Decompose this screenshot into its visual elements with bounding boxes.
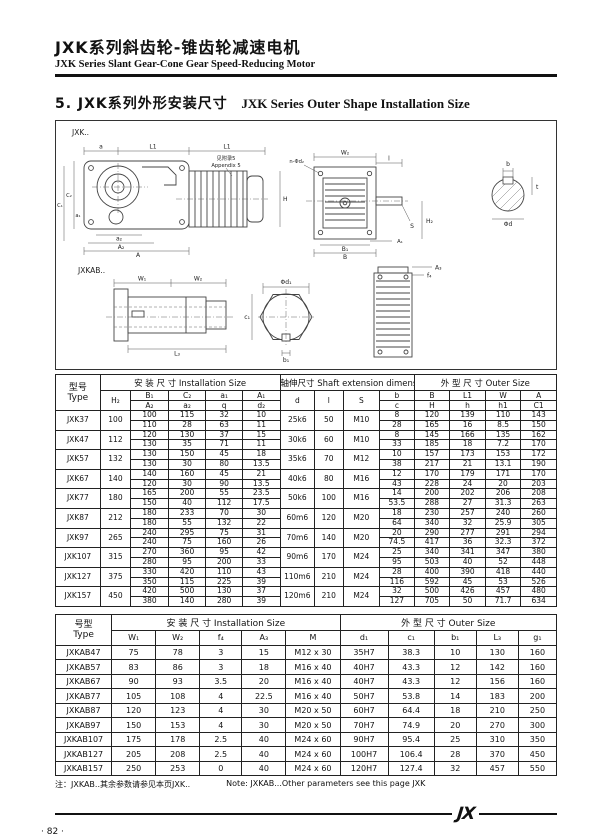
value-cell: 42650 [450,587,486,607]
value-cell: 230340 [414,508,450,528]
value-cell: 120 [315,508,343,528]
dim-label: B [343,254,347,261]
type-cell: JXK157 [56,587,101,607]
value-cell: 3.5 [200,674,242,689]
value-cell: 2595 [380,548,415,568]
value-cell: M12 [343,450,380,470]
value-cell: 75160 [206,528,243,548]
value-cell: 3 [200,660,242,675]
jxk-front-dims [304,153,422,257]
value-cell: 32 [434,761,476,776]
value-cell: 1038 [380,450,415,470]
table-row: JXK77180165150200405511223.517.550k6100M… [56,489,557,509]
brand-logo: JX [456,804,476,824]
value-cell: 550 [518,761,556,776]
dim-label: B₁ [342,246,349,253]
value-cell: 95.4 [388,732,434,747]
value-cell: 90 [112,674,156,689]
value-cell: 210 [315,567,343,587]
value-cell: 16030 [168,469,206,489]
jxk-dimension-table: 型号Type安 装 尺 寸 Installation Size轴伸尺寸 Shaf… [55,374,557,607]
value-cell: 240240 [131,528,169,548]
shaft-section-view [470,165,544,229]
page-number: · 82 · [41,827,557,837]
jxk-front-view [314,167,402,239]
value-cell: 13035 [168,430,206,450]
value-cell: M10 [343,430,380,450]
value-cell: 18 [434,703,476,718]
table-row: JXK872121801802335570132302260m6120M2018… [56,508,557,528]
value-cell: 212 [100,508,130,528]
value-cell: 32127 [380,587,415,607]
value-cell: M20 [343,528,380,548]
value-cell: 30 [242,718,286,733]
value-cell: 310 [476,732,518,747]
value-cell: 123 [156,703,200,718]
column-header: Wh1 [485,391,521,411]
value-cell: 4339 [242,567,280,587]
value-cell: 70m6 [280,528,315,548]
value-cell: 30k6 [280,430,315,450]
value-cell: 29575 [168,528,206,548]
column-header: A₃ [242,630,286,645]
group-header: 安 装 尺 寸 Installation Size [112,614,340,630]
dim-label: b [506,161,510,168]
value-cell: 833 [380,430,415,450]
value-cell: 178 [156,732,200,747]
value-cell: 208263 [521,489,557,509]
column-header: M [286,630,340,645]
table-row: JXKAB77105108422.5M16 x 4050H753.8141832… [56,689,557,704]
value-cell: 28116 [380,567,415,587]
value-cell: 100H7 [340,747,388,762]
value-cell: 17924 [450,469,486,489]
value-cell: 145185 [414,430,450,450]
value-cell: 260305 [521,508,557,528]
dim-label: S [410,223,414,230]
group-header: 外 型 尺 寸 Outer Size [340,614,556,630]
table-row: JXK1073152702803609595200423390m6170M242… [56,548,557,568]
value-cell: 132 [100,450,130,470]
value-cell: 170203 [521,469,557,489]
value-cell: 165150 [131,489,169,509]
value-cell: 370 [476,747,518,762]
value-cell: 34752 [485,548,521,568]
value-cell: 440526 [521,567,557,587]
value-cell: 60m6 [280,508,315,528]
value-cell: 13916 [450,411,486,431]
value-cell: M16 [343,469,380,489]
type-cell: JXKAB57 [56,660,112,675]
value-cell: 375 [100,567,130,587]
column-header: W₁ [112,630,156,645]
section-title: 5. JXK系列外形安装尺寸 JXK Series Outer Shape In… [55,93,557,113]
column-header: l [315,391,343,411]
value-cell: 205 [112,747,156,762]
dim-label: H₂ [426,218,434,225]
value-cell: 500705 [414,587,450,607]
value-cell: 380448 [521,548,557,568]
dim-label: L₃ [174,351,180,358]
value-cell: 183 [476,689,518,704]
technical-drawing-box: JXK.. [55,120,557,370]
value-cell: 60 [315,430,343,450]
value-cell: 290417 [414,528,450,548]
value-cell: 74.9 [388,718,434,733]
jxkab-vertical-view [374,267,412,357]
value-cell: 18 [242,660,286,675]
column-header: d₁ [340,630,388,645]
appendix-note-en: Appendix 5 [211,163,240,169]
value-cell: M20 x 50 [286,703,340,718]
group-header: 外 型 尺 寸 Outer Size [414,375,556,391]
jxk-figure-label: JXK.. [71,128,89,137]
column-header: S [343,391,380,411]
value-cell: 4590 [206,469,243,489]
type-cell: JXK97 [56,528,101,548]
value-cell: 170228 [414,469,450,489]
table-row: JXKAB477578315M12 x 3035H738.310130160 [56,645,557,660]
value-cell: 110m6 [280,567,315,587]
value-cell: 253 [156,761,200,776]
value-cell: 3263 [206,411,243,431]
type-cell: JXKAB47 [56,645,112,660]
technical-drawing: JXK.. [56,121,556,369]
value-cell: 3 [200,645,242,660]
value-cell: 40k6 [280,469,315,489]
value-cell: 3739 [242,587,280,607]
column-header: c₁ [388,630,434,645]
value-cell: 300 [518,718,556,733]
value-cell: 15313.1 [485,450,521,470]
footnote-en: Note: JXKAB...Other parameters see this … [226,779,425,790]
value-cell: 500140 [168,587,206,607]
value-cell: 95200 [206,548,243,568]
value-cell: 15030 [168,450,206,470]
value-cell: 172190 [521,450,557,470]
value-cell: 108 [156,689,200,704]
value-cell: M24 [343,567,380,587]
value-cell: M16 [343,489,380,509]
value-cell: 180 [100,489,130,509]
value-cell: 78 [156,645,200,660]
catalog-page: JXK系列斜齿轮-锥齿轮减速电机 JXK Series Slant Gear-C… [0,0,610,837]
type-cell: JXK47 [56,430,101,450]
dim-label: A₃ [435,265,442,272]
value-cell: 43.3 [388,660,434,675]
value-cell: 90m6 [280,548,315,568]
value-cell: 157217 [414,450,450,470]
value-cell: 23355 [168,508,206,528]
bore-centerlines [258,289,314,345]
series-title-cn: JXK系列斜齿轮-锥齿轮减速电机 [55,34,557,58]
value-cell: 93 [156,674,200,689]
value-cell: 828 [380,411,415,431]
value-cell: 160 [518,674,556,689]
value-cell: 4 [200,703,242,718]
value-cell: M16 x 40 [286,689,340,704]
value-cell: 120H7 [340,761,388,776]
value-cell: 29132.3 [485,528,521,548]
value-cell: M24 [343,548,380,568]
value-cell: 210 [315,587,343,607]
table-row: JXK47112120130130353771151130k660M108331… [56,430,557,450]
value-cell: 105 [112,689,156,704]
value-cell: 450 [100,587,130,607]
dim-label: Φd₁ [281,279,293,286]
dim-label: W₂ [194,276,203,283]
type-cell: JXK67 [56,469,101,489]
value-cell: 11528 [168,411,206,431]
value-cell: 140 [100,469,130,489]
type-cell: JXKAB97 [56,718,112,733]
value-cell: 3022 [242,508,280,528]
value-cell: 350 [518,732,556,747]
value-cell: 20227 [450,489,486,509]
dim-label: A₂ [118,244,125,251]
jxk-side-view [84,161,263,229]
dim-label: A [136,252,141,259]
value-cell: 265 [100,528,130,548]
value-cell: 90H7 [340,732,388,747]
jxkab-bore-dims [252,283,309,356]
value-cell: 130280 [206,587,243,607]
value-cell: 50 [315,411,343,431]
footnote-cn: 注：JXKAB..其余参数请参见本页JXK.. [55,779,190,790]
value-cell: 100 [100,411,130,431]
value-cell: 35H7 [340,645,388,660]
value-cell: 10 [434,645,476,660]
value-cell: 36095 [168,548,206,568]
value-cell: 250 [112,761,156,776]
value-cell: 170 [315,548,343,568]
value-cell: 17120 [485,469,521,489]
column-header: B₁A₂ [131,391,169,411]
jxkab-figure-label: JXKAB.. [77,266,105,275]
series-title-en: JXK Series Slant Gear-Cone Gear Speed-Re… [55,59,557,70]
dim-label: f₄ [427,273,432,280]
column-header: L₃ [476,630,518,645]
footer-rule: JX [55,804,557,824]
column-header: BH [414,391,450,411]
value-cell: 127.4 [388,761,434,776]
table-row: JXKAB1071751782.540M24 x 6090H795.425310… [56,732,557,747]
dim-label: l [388,156,390,163]
dim-label: b₁ [283,357,290,364]
value-cell: 130130 [131,450,169,470]
table-row: JXKAB97150153430M20 x 5070H774.920270300 [56,718,557,733]
value-cell: 110225 [206,567,243,587]
dim-label: a₁ [75,213,80,219]
value-cell: 250 [518,703,556,718]
column-header: A₁d₂ [242,391,280,411]
value-cell: 60H7 [340,703,388,718]
dim-label: n-Φd₂ [289,159,304,165]
jxkab-dimension-table: 号型Type安 装 尺 寸 Installation Size外 型 尺 寸 O… [55,614,557,777]
value-cell: 50k6 [280,489,315,509]
value-cell: 41853 [485,567,521,587]
value-cell: 420115 [168,567,206,587]
type-cell: JXK127 [56,567,101,587]
column-header: a₁q [206,391,243,411]
type-cell: JXKAB87 [56,703,112,718]
value-cell: 330350 [131,567,169,587]
value-cell: 16618 [450,430,486,450]
value-cell: 50H7 [340,689,388,704]
value-cell: 4580 [206,450,243,470]
value-cell: M20 x 50 [286,718,340,733]
value-cell: 0 [200,761,242,776]
value-cell: 20 [434,718,476,733]
type-cell: JXK87 [56,508,101,528]
value-cell: 28 [434,747,476,762]
value-cell: 75 [112,645,156,660]
value-cell: 1511 [242,430,280,450]
value-cell: 162170 [521,430,557,450]
value-cell: 120m6 [280,587,315,607]
value-cell: 70132 [206,508,243,528]
column-header: d [280,391,315,411]
value-cell: 20 [242,674,286,689]
dim-label: a [99,144,103,151]
table-row: JXK37100100110115283263101125k650M108281… [56,411,557,431]
table-row: JXK671401401201603045902113.540k680M1612… [56,469,557,489]
value-cell: 43.3 [388,674,434,689]
value-cell: 17321 [450,450,486,470]
value-cell: 3126 [242,528,280,548]
section-title-en: JXK Series Outer Shape Installation Size [241,96,469,111]
value-cell: 208 [156,747,200,762]
dim-label: H [283,196,288,203]
page-header: JXK系列斜齿轮-锥齿轮减速电机 JXK Series Slant Gear-C… [55,34,557,77]
value-cell: 315 [100,548,130,568]
value-cell: 25732 [450,508,486,528]
value-cell: 175 [112,732,156,747]
value-cell: 480634 [521,587,557,607]
value-cell: 143150 [521,411,557,431]
value-cell: 140120 [131,469,169,489]
value-cell: 40H7 [340,660,388,675]
value-cell: 200288 [414,489,450,509]
value-cell: 156 [476,674,518,689]
value-cell: 4233 [242,548,280,568]
table-row: JXK1273753303504201151102254339110m6210M… [56,567,557,587]
value-cell: M24 [343,587,380,607]
value-cell: 25k6 [280,411,315,431]
column-header: g₁ [518,630,556,645]
value-cell: 1813.5 [242,450,280,470]
value-cell: 27736 [450,528,486,548]
value-cell: 2.5 [200,732,242,747]
value-cell: 120165 [414,411,450,431]
column-header: f₄ [200,630,242,645]
value-cell: 142 [476,660,518,675]
column-header: bc [380,391,415,411]
value-cell: 130 [476,645,518,660]
value-cell: 64.4 [388,703,434,718]
value-cell: 30 [242,703,286,718]
value-cell: M16 x 40 [286,674,340,689]
group-header: 轴伸尺寸 Shaft extension dimension [280,375,414,391]
column-header: AC1 [521,391,557,411]
type-cell: JXK107 [56,548,101,568]
value-cell: 14 [434,689,476,704]
value-cell: 35k6 [280,450,315,470]
value-cell: 4 [200,689,242,704]
value-cell: M16 x 40 [286,660,340,675]
value-cell: 12 [434,660,476,675]
value-cell: 400592 [414,567,450,587]
jxkab-sleeve-view [114,289,226,341]
value-cell: 1357.2 [485,430,521,450]
dim-label: W₁ [138,276,147,283]
value-cell: 2074.5 [380,528,415,548]
column-header: C₂a₂ [168,391,206,411]
value-cell: M20 [343,508,380,528]
value-cell: 3771 [206,430,243,450]
type-cell: JXKAB107 [56,732,112,747]
appendix-note-cn: 见附录5 [217,154,236,162]
value-cell: 40 [242,761,286,776]
value-cell: 1864 [380,508,415,528]
type-cell: JXK37 [56,411,101,431]
value-cell: 22.5 [242,689,286,704]
value-cell: 53.8 [388,689,434,704]
value-cell: 1011 [242,411,280,431]
dim-label: C₂ [66,193,72,199]
value-cell: 140 [315,528,343,548]
dim-label: Φd [504,221,513,228]
value-cell: 40H7 [340,674,388,689]
jxkab-sleeve-dims [114,279,226,353]
value-cell: M24 x 60 [286,732,340,747]
header-rule [55,74,557,77]
dim-label: W₂ [341,150,350,157]
value-cell: 40 [242,732,286,747]
value-cell: M24 x 60 [286,747,340,762]
dim-label: L1 [149,144,156,151]
sleeve-bore-lines [106,307,234,327]
value-cell: 210 [476,703,518,718]
value-cell: 15 [242,645,286,660]
value-cell: 112 [100,430,130,450]
value-cell: 340503 [414,548,450,568]
dim-label: A₁ [397,239,403,245]
value-cell: 106.4 [388,747,434,762]
value-cell: 86 [156,660,200,675]
value-cell: 160 [518,660,556,675]
value-cell: M24 x 60 [286,761,340,776]
value-cell: 70 [315,450,343,470]
value-cell: 20040 [168,489,206,509]
group-header: 安 装 尺 寸 Installation Size [100,375,280,391]
value-cell: 294372 [521,528,557,548]
value-cell: 23.517.5 [242,489,280,509]
value-cell: 420380 [131,587,169,607]
column-header: H₂ [100,391,130,411]
value-cell: 270 [476,718,518,733]
table-row: JXK972652402402957575160312670m6140M2020… [56,528,557,548]
table-row: JXKAB157250253040M24 x 60120H7127.432457… [56,761,557,776]
jxk-side-dims [64,147,280,255]
value-cell: 12 [434,674,476,689]
centerlines [92,163,268,213]
section-title-cn: 5. JXK系列外形安装尺寸 [55,96,228,112]
type-cell: JXKAB77 [56,689,112,704]
value-cell: 1453.5 [380,489,415,509]
dim-label: t [536,184,539,191]
value-cell: 200 [518,689,556,704]
